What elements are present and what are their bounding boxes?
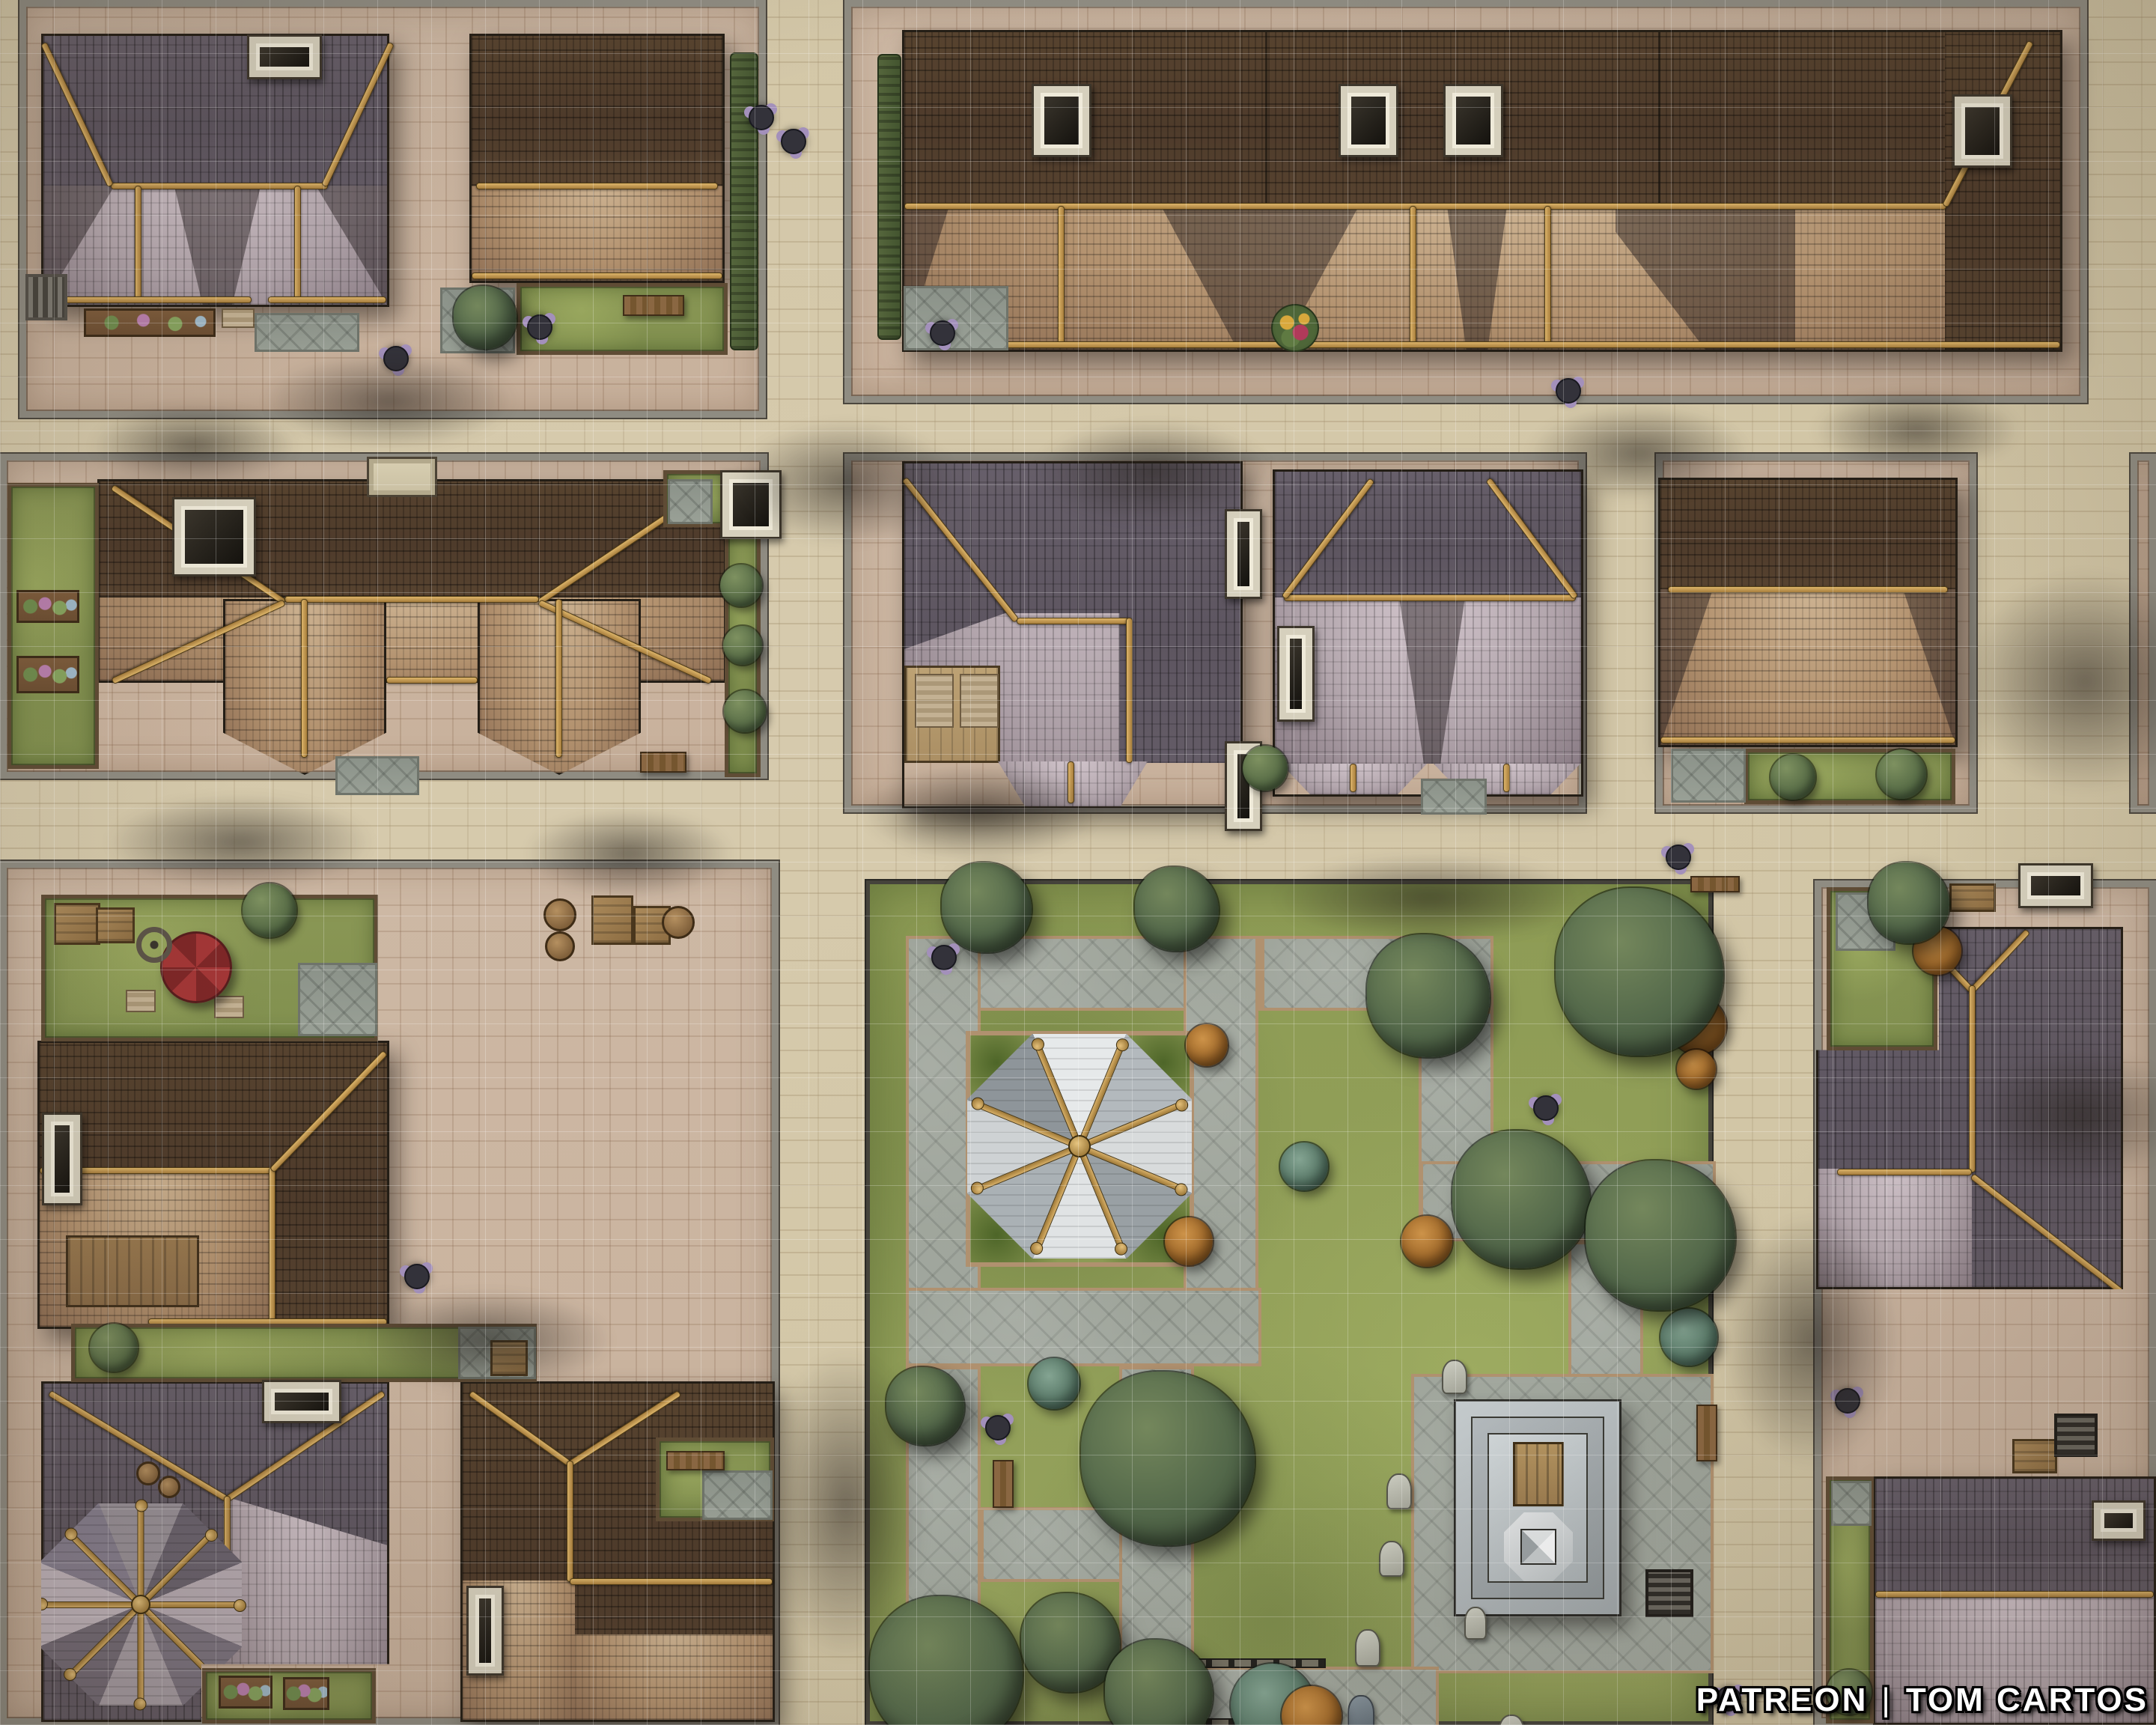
smoke-smudge	[764, 1348, 928, 1662]
street-lamp-icon	[1556, 378, 1581, 404]
bush	[90, 1324, 138, 1372]
smoke-smudge	[861, 764, 1100, 861]
smoke-smudge	[1722, 1213, 1901, 1467]
planter-box	[84, 308, 216, 337]
smoke-smudge	[1033, 419, 1273, 524]
smoke-smudge	[90, 404, 299, 487]
door-mat	[126, 990, 156, 1012]
stone-patio	[668, 479, 713, 524]
door-mat	[960, 674, 999, 728]
door-mat	[214, 996, 244, 1018]
bush	[1877, 749, 1926, 799]
tree	[454, 286, 517, 349]
street-lamp-icon	[781, 129, 806, 154]
smoke-smudge	[359, 1288, 614, 1393]
planter-box	[16, 656, 79, 693]
bush	[243, 883, 296, 937]
watermark-artist: TOM CARTOS	[1906, 1682, 2149, 1718]
gravestone	[1464, 1607, 1487, 1640]
tree	[1021, 1593, 1120, 1692]
street-lamp-icon	[1666, 845, 1691, 870]
crate	[1949, 883, 1996, 912]
skylight	[42, 1113, 82, 1205]
smoke-smudge	[1812, 389, 2021, 472]
stone-patio	[1671, 749, 1746, 803]
bench	[623, 295, 684, 316]
skylight	[172, 497, 256, 576]
street-lamp-icon	[749, 105, 774, 130]
teal-bush	[1029, 1358, 1079, 1409]
stone-patio	[255, 313, 359, 352]
smoke-smudge	[1527, 404, 1752, 502]
street-lamp-icon	[931, 945, 957, 970]
autumn-tree	[1677, 1050, 1716, 1089]
street-lamp-icon	[404, 1264, 430, 1289]
garden-lawn	[7, 483, 99, 769]
crate	[54, 903, 100, 945]
wagon-wheel	[136, 927, 172, 963]
drain-grate	[2054, 1414, 2098, 1457]
gravestone	[1442, 1360, 1467, 1394]
street-lamp-icon	[527, 314, 552, 340]
skylight	[466, 1586, 504, 1676]
flower-bush	[1271, 304, 1319, 352]
street-lamp-icon	[1533, 1095, 1559, 1121]
crate	[96, 907, 135, 943]
barrel	[158, 1476, 180, 1498]
planter-box	[16, 590, 79, 623]
barrel	[545, 931, 575, 961]
bench	[666, 1451, 725, 1470]
street-lamp-icon	[985, 1415, 1011, 1440]
skylight	[247, 34, 322, 79]
stone-patio	[335, 756, 419, 795]
watermark-site: PATREON	[1696, 1682, 1869, 1718]
skylight	[2018, 863, 2093, 908]
door-mat	[915, 674, 954, 728]
smoke-smudge	[1961, 569, 2156, 794]
teal-bush	[1660, 1309, 1717, 1366]
gravestone	[1355, 1629, 1380, 1667]
bush	[1770, 755, 1815, 800]
roof-vent	[367, 457, 437, 497]
skylight	[262, 1380, 341, 1423]
teal-bush	[1280, 1143, 1328, 1190]
smoke-smudge	[1976, 1048, 2156, 1183]
autumn-tree	[1401, 1216, 1452, 1267]
bush	[724, 690, 766, 732]
smoke-smudge	[105, 794, 374, 891]
skylight	[1277, 626, 1315, 722]
stone-patio	[1831, 1481, 1872, 1526]
tree	[1586, 1160, 1735, 1310]
gravestone	[1499, 1715, 1524, 1725]
scenery-layer	[0, 0, 2156, 1725]
bench	[993, 1460, 1014, 1508]
smoke-smudge	[524, 809, 734, 898]
planter-box	[219, 1676, 272, 1709]
crate	[2012, 1439, 2057, 1473]
watermark-separator: |	[1881, 1682, 1892, 1718]
cellar-door	[25, 274, 67, 320]
hedge	[877, 54, 901, 340]
tree	[1105, 1640, 1213, 1725]
door-mat	[222, 308, 255, 328]
stone-patio	[702, 1470, 773, 1520]
planter-box	[283, 1677, 329, 1710]
bush	[720, 565, 762, 606]
hedge	[730, 52, 758, 350]
street-lamp-icon	[930, 320, 955, 346]
drain-grate	[1645, 1569, 1693, 1617]
bush	[723, 626, 762, 665]
smoke-smudge	[262, 352, 517, 449]
gravestone-dark	[1347, 1695, 1374, 1725]
crate	[591, 895, 633, 945]
barrel	[136, 1461, 160, 1485]
gravestone	[1379, 1541, 1404, 1577]
tree	[1869, 862, 1949, 943]
tree	[1135, 867, 1219, 951]
barrel	[662, 906, 695, 939]
stone-patio	[1421, 779, 1487, 815]
autumn-tree	[1165, 1217, 1213, 1265]
autumn-tree	[1186, 1024, 1228, 1066]
watermark: PATREON|TOM CARTOS	[1696, 1682, 2149, 1719]
tree	[1367, 934, 1490, 1057]
bench	[1690, 876, 1740, 892]
wood-cart	[66, 1235, 199, 1307]
skylight	[2092, 1500, 2146, 1541]
battle-map: PATREON|TOM CARTOS	[0, 0, 2156, 1725]
bench	[640, 752, 686, 773]
tree	[1452, 1131, 1590, 1268]
skylight	[1339, 84, 1398, 157]
skylight	[1032, 84, 1091, 157]
barrel	[543, 898, 576, 931]
tree	[942, 862, 1032, 952]
bush	[1243, 746, 1288, 791]
gravestone	[1386, 1473, 1412, 1509]
tree	[1081, 1372, 1255, 1545]
bench	[1696, 1405, 1717, 1461]
stone-patio	[298, 963, 377, 1036]
smoke-smudge	[1273, 854, 1587, 943]
stone-patio	[904, 286, 1008, 350]
smoke-smudge	[734, 419, 958, 547]
skylight	[1952, 94, 2012, 168]
skylight	[1443, 84, 1503, 157]
